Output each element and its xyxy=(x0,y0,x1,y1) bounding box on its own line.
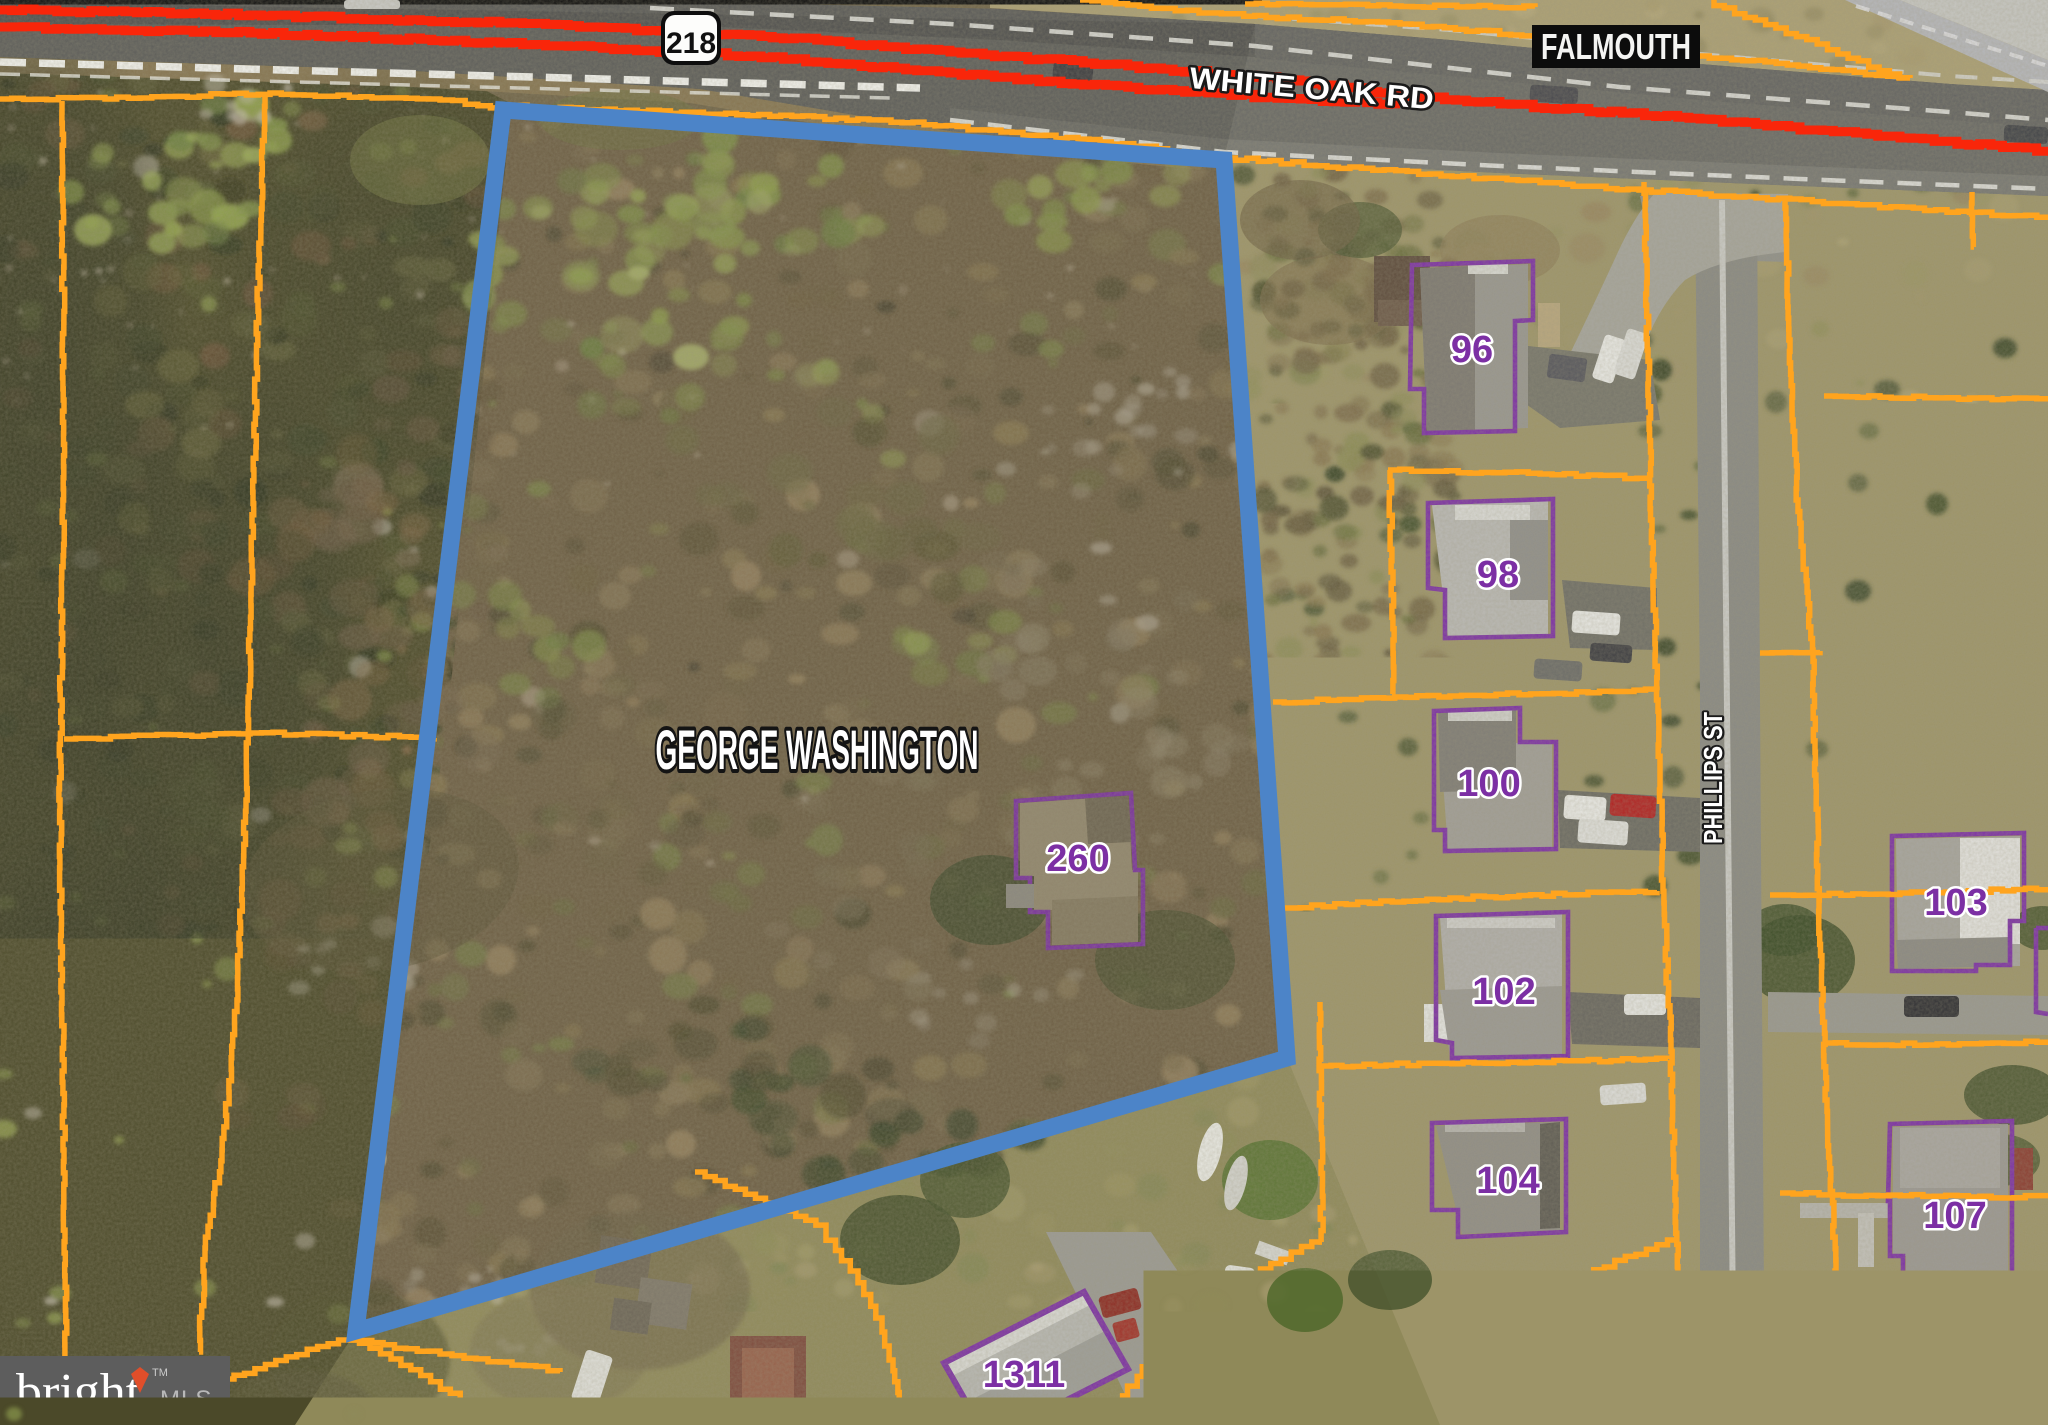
svg-text:GEORGE WASHINGTON: GEORGE WASHINGTON xyxy=(656,718,979,781)
svg-text:109: 109 xyxy=(1968,1392,2031,1425)
svg-text:218: 218 xyxy=(666,27,716,60)
svg-text:PHILLIPS ST: PHILLIPS ST xyxy=(1698,712,1728,844)
svg-text:102: 102 xyxy=(1472,971,1535,1013)
svg-text:TM: TM xyxy=(152,1367,168,1379)
svg-text:260: 260 xyxy=(1046,838,1109,880)
svg-text:96: 96 xyxy=(1451,329,1493,371)
svg-text:FALMOUTH: FALMOUTH xyxy=(1541,26,1691,67)
svg-text:1311: 1311 xyxy=(983,1354,1065,1396)
svg-text:bright: bright xyxy=(16,1364,141,1421)
svg-text:100: 100 xyxy=(1457,763,1520,805)
svg-text:107: 107 xyxy=(1923,1195,1986,1237)
svg-text:MLS: MLS xyxy=(160,1386,212,1413)
svg-text:104: 104 xyxy=(1476,1160,1539,1202)
svg-text:1309: 1309 xyxy=(778,1405,867,1425)
svg-text:103: 103 xyxy=(1924,882,1987,924)
svg-text:98: 98 xyxy=(1477,554,1519,596)
